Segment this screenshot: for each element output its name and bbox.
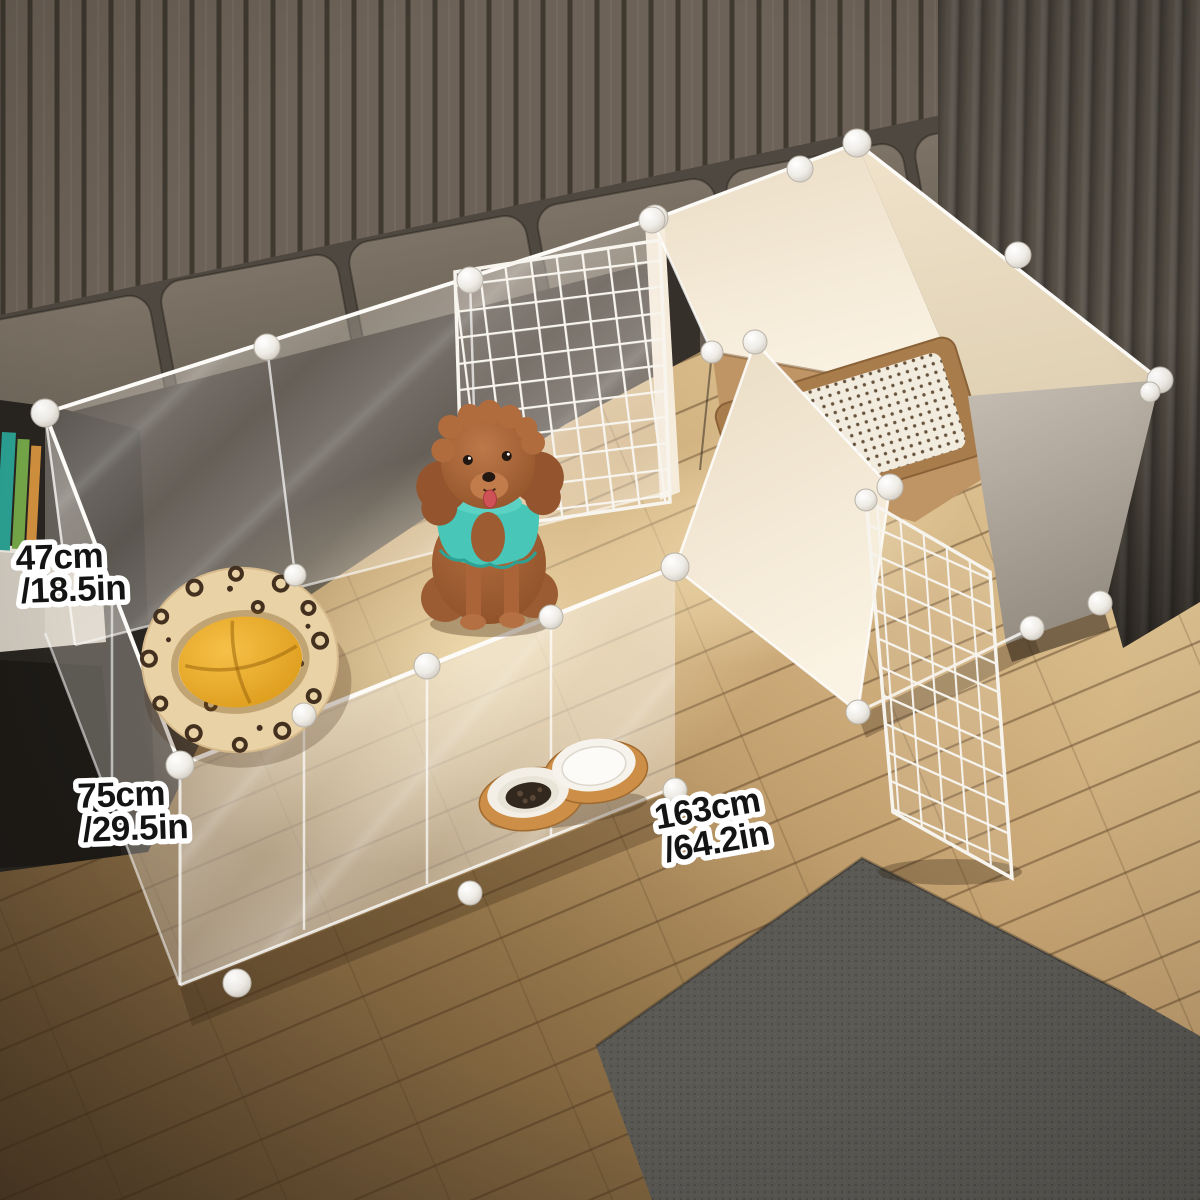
scene-canvas: 47cm /18.5in 75cm /29.5in 163cm /64.2in	[0, 0, 1200, 1200]
vignette	[0, 0, 1200, 1200]
product-photo-pet-playpen: 47cm /18.5in 75cm /29.5in 163cm /64.2in	[0, 0, 1200, 1200]
depth-label-line2: /29.5in	[82, 807, 189, 850]
height-label-line2: /18.5in	[20, 568, 127, 611]
